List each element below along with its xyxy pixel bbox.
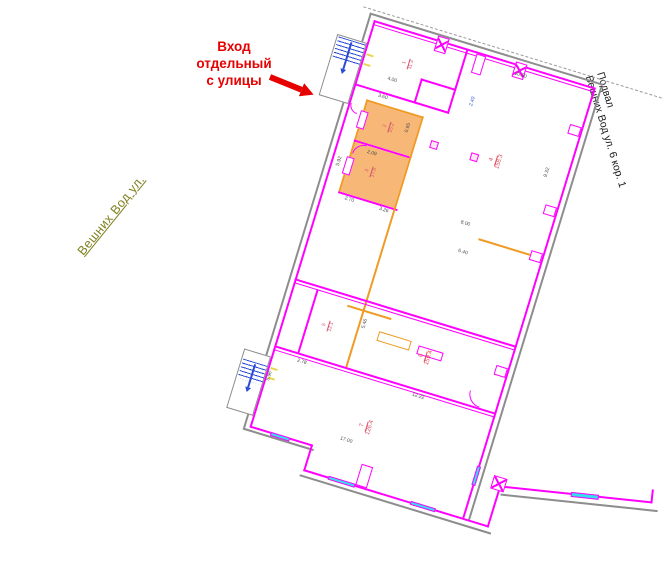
dimension-label: 3.26 bbox=[378, 207, 389, 215]
wall-segment bbox=[299, 474, 491, 534]
dimension-label: 5.96 bbox=[266, 371, 274, 382]
room-area-value: 11.3 bbox=[407, 60, 415, 71]
room-area-label: 4158.3 bbox=[487, 152, 505, 171]
window-marker bbox=[571, 492, 599, 500]
wall-segment bbox=[373, 20, 595, 90]
dimension-label: 2.40 bbox=[469, 96, 477, 107]
step-tick bbox=[271, 367, 278, 370]
room-area-label: 7126.4 bbox=[357, 417, 375, 436]
entrance-note-line: отдельный bbox=[178, 55, 290, 72]
dimension-label: 5.92 bbox=[336, 156, 344, 167]
room-area-label: 6159.4 bbox=[416, 348, 434, 367]
wall-segment bbox=[369, 13, 603, 86]
dimension-label: 17.00 bbox=[339, 436, 352, 444]
wall-segment bbox=[462, 87, 595, 518]
street-name-label: Вешних Вод ул. bbox=[75, 148, 168, 258]
dimension-label: 9.32 bbox=[544, 167, 552, 178]
wall-segment bbox=[468, 87, 602, 520]
wall-segment bbox=[376, 331, 411, 351]
wall-segment bbox=[274, 345, 496, 415]
wall-segment bbox=[243, 428, 314, 452]
door-arc bbox=[348, 103, 359, 114]
dimension-label: 2.70 bbox=[344, 196, 355, 204]
column-square bbox=[429, 140, 439, 150]
wall-segment bbox=[413, 78, 422, 103]
dimension-label: 5.46 bbox=[361, 318, 369, 329]
room-area-label: 111.3 bbox=[401, 57, 416, 71]
dimension-label: 12.22 bbox=[411, 393, 424, 401]
floor-plan: 4.003.600.652.095.9210.509.322.402.703.2… bbox=[241, 20, 596, 523]
room-area-label: 512.1 bbox=[321, 319, 336, 333]
step-tick bbox=[366, 53, 373, 56]
wall-segment bbox=[355, 464, 373, 489]
dimension-label: 3.60 bbox=[377, 94, 388, 102]
wall-segment bbox=[650, 489, 653, 503]
step-tick bbox=[364, 63, 371, 66]
dimension-label: 6.40 bbox=[457, 249, 468, 257]
wall-segment bbox=[298, 289, 319, 353]
wall-segment bbox=[363, 6, 662, 98]
wing-wall-group bbox=[499, 486, 660, 523]
dimension-label: 8.00 bbox=[460, 220, 471, 228]
entrance-note-line: Вход bbox=[178, 38, 290, 55]
column-square bbox=[469, 152, 479, 162]
room-area-value: 12.1 bbox=[327, 321, 335, 332]
wall-segment bbox=[294, 278, 516, 348]
dimension-label: 4.00 bbox=[387, 77, 398, 85]
screenshot-root: { "annotations": { "entrance_note": { "l… bbox=[0, 0, 666, 537]
dimension-label: 2.78 bbox=[296, 358, 307, 366]
arrow-shaft bbox=[269, 74, 303, 92]
entrance-arrow-icon bbox=[267, 71, 317, 102]
wall-segment bbox=[447, 48, 469, 114]
wall-pilaster bbox=[471, 53, 486, 75]
wall-segment bbox=[421, 78, 457, 90]
